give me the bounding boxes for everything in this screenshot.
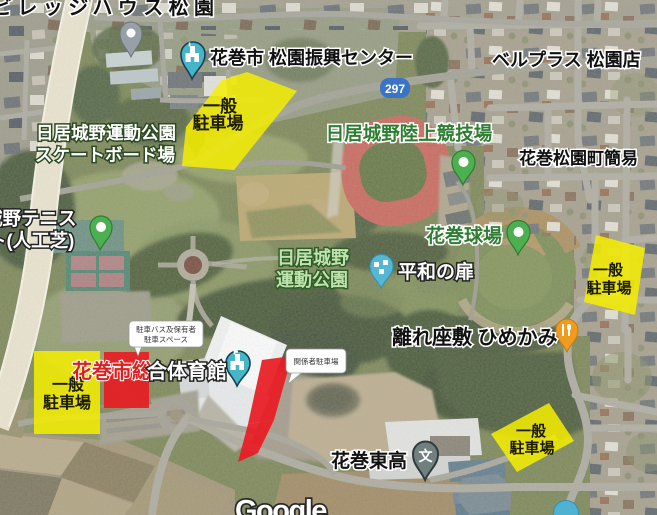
svg-text:駐車場: 駐車場: [193, 113, 244, 133]
svg-text:ビレッジハウス松園: ビレッジハウス松園: [0, 0, 219, 19]
svg-text:文: 文: [419, 448, 434, 464]
svg-text:Google: Google: [235, 495, 327, 515]
svg-text:花巻松園町簡易: 花巻松園町簡易: [519, 148, 638, 168]
svg-text:関係者駐車場: 関係者駐車場: [294, 356, 339, 366]
svg-text:駐車バス及保有者: 駐車バス及保有者: [136, 324, 196, 334]
svg-text:一般: 一般: [203, 96, 237, 116]
svg-text:日居城野運動公園: 日居城野運動公園: [36, 123, 176, 143]
svg-text:一般: 一般: [593, 261, 623, 279]
svg-text:駐車スペース: 駐車スペース: [144, 334, 188, 344]
svg-text:花巻市 松園振興センター: 花巻市 松園振興センター: [210, 47, 413, 68]
svg-text:ベルプラス 松園店: ベルプラス 松園店: [492, 49, 641, 70]
svg-text:花巻市総: 花巻市総: [72, 359, 152, 383]
svg-text:花巻東高: 花巻東高: [331, 449, 407, 472]
svg-text:スケートボード場: スケートボード場: [35, 145, 175, 165]
svg-text:日居城野: 日居城野: [277, 247, 349, 268]
svg-text:離れ座敷 ひめかみ: 離れ座敷 ひめかみ: [392, 325, 558, 349]
svg-text:合体育館: 合体育館: [147, 359, 227, 383]
svg-text:駐車場: 駐車場: [509, 439, 554, 457]
svg-text:平和の扉: 平和の扉: [398, 260, 474, 283]
svg-text:城野テニス: 城野テニス: [0, 208, 77, 229]
svg-text:運動公園: 運動公園: [276, 269, 348, 290]
svg-text:一般: 一般: [516, 422, 546, 440]
svg-text:ト(人工芝): ト(人工芝): [0, 230, 74, 251]
svg-text:駐車場: 駐車場: [43, 393, 91, 412]
svg-text:駐車場: 駐車場: [586, 279, 631, 297]
svg-text:花巻球場: 花巻球場: [426, 224, 502, 247]
svg-text:297: 297: [385, 82, 405, 96]
svg-text:日居城野陸上競技場: 日居城野陸上競技場: [326, 123, 493, 144]
